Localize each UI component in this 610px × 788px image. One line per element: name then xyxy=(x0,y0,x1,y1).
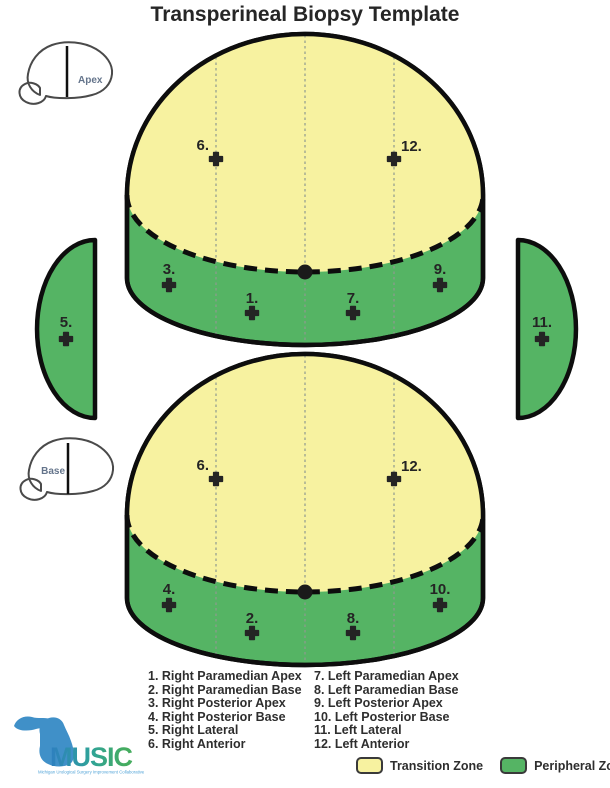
marker-label-3: 3. xyxy=(163,261,176,278)
biopsy-template-diagram: Apex Base 6. 12. 3. 1. 7. xyxy=(0,0,610,788)
key-item: 9. Left Posterior Apex xyxy=(314,697,459,711)
peripheral-zone-swatch xyxy=(500,757,527,774)
apex-axial-template: 6. 12. 3. 1. 7. 9. xyxy=(127,34,483,345)
midline-dot-base xyxy=(298,585,313,600)
marker-label-8: 8. xyxy=(347,610,360,627)
key-item: 4. Right Posterior Base xyxy=(148,711,302,725)
key-item: 12. Left Anterior xyxy=(314,738,459,752)
key-item: 7. Left Paramedian Apex xyxy=(314,670,459,684)
music-logo: MUSIC Michigan Urological Surgery Improv… xyxy=(14,716,145,774)
key-item: 3. Right Posterior Apex xyxy=(148,697,302,711)
marker-label-1: 1. xyxy=(246,290,259,307)
transition-zone-label: Transition Zone xyxy=(390,759,483,773)
marker-label-5: 5. xyxy=(60,314,73,331)
key-item: 8. Left Paramedian Base xyxy=(314,684,459,698)
base-axial-template: 6. 12. 4. 2. 8. 10. xyxy=(127,354,483,665)
marker-label-12: 12. xyxy=(401,138,422,155)
biopsy-template-page: Transperineal Biopsy Template xyxy=(0,0,610,788)
key-item: 11. Left Lateral xyxy=(314,724,459,738)
base-side-sketch: Base xyxy=(20,438,113,500)
logo-tagline: Michigan Urological Surgery Improvement … xyxy=(38,770,145,775)
key-item: 6. Right Anterior xyxy=(148,738,302,752)
marker-label-7: 7. xyxy=(347,290,360,307)
biopsy-key-left-side: 7. Left Paramedian Apex 8. Left Paramedi… xyxy=(314,670,459,752)
apex-side-sketch: Apex xyxy=(19,42,112,104)
key-item: 2. Right Paramedian Base xyxy=(148,684,302,698)
key-item: 5. Right Lateral xyxy=(148,724,302,738)
marker-label-6: 6. xyxy=(196,457,209,474)
marker-label-4: 4. xyxy=(163,581,176,598)
logo-wordmark: MUSIC xyxy=(50,742,133,772)
marker-label-2: 2. xyxy=(246,610,259,627)
key-item: 1. Right Paramedian Apex xyxy=(148,670,302,684)
right-lateral-crescent: 5. xyxy=(37,240,95,418)
transition-zone-swatch xyxy=(356,757,383,774)
key-item: 10. Left Posterior Base xyxy=(314,711,459,725)
biopsy-key-right-side: 1. Right Paramedian Apex 2. Right Parame… xyxy=(148,670,302,752)
base-sketch-label: Base xyxy=(41,466,65,477)
apex-sketch-label: Apex xyxy=(78,75,103,86)
marker-label-6: 6. xyxy=(196,137,209,154)
marker-label-9: 9. xyxy=(434,261,447,278)
peripheral-zone-label: Peripheral Zone xyxy=(534,759,610,773)
marker-label-11: 11. xyxy=(532,314,552,331)
midline-dot-apex xyxy=(298,265,313,280)
marker-label-12: 12. xyxy=(401,458,422,475)
left-lateral-crescent: 11. xyxy=(518,240,576,418)
zone-color-legend: Transition Zone Peripheral Zone xyxy=(356,757,610,774)
marker-label-10: 10. xyxy=(430,581,451,598)
